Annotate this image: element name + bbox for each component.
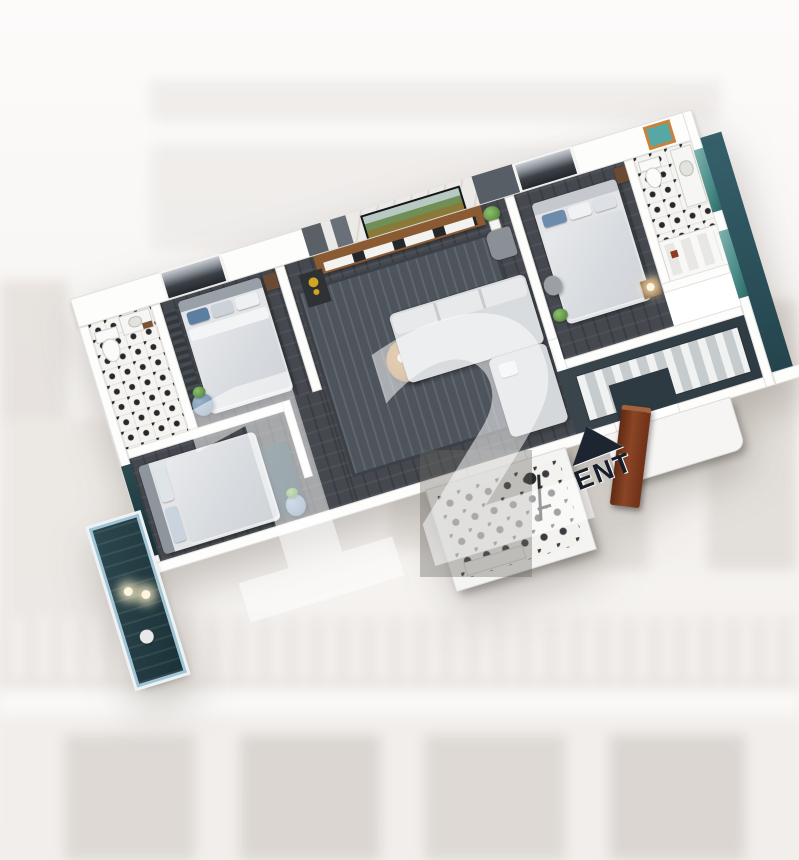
facade-cornice-band [0, 683, 799, 721]
facade-storefront-glass-4 [610, 735, 745, 860]
real-estate-render-scene: 12 ENT [0, 0, 799, 860]
facade-storefront-glass-2 [240, 735, 380, 860]
facade-storefront-glass-3 [425, 735, 565, 860]
facade-storefront-glass-1 [65, 735, 195, 860]
